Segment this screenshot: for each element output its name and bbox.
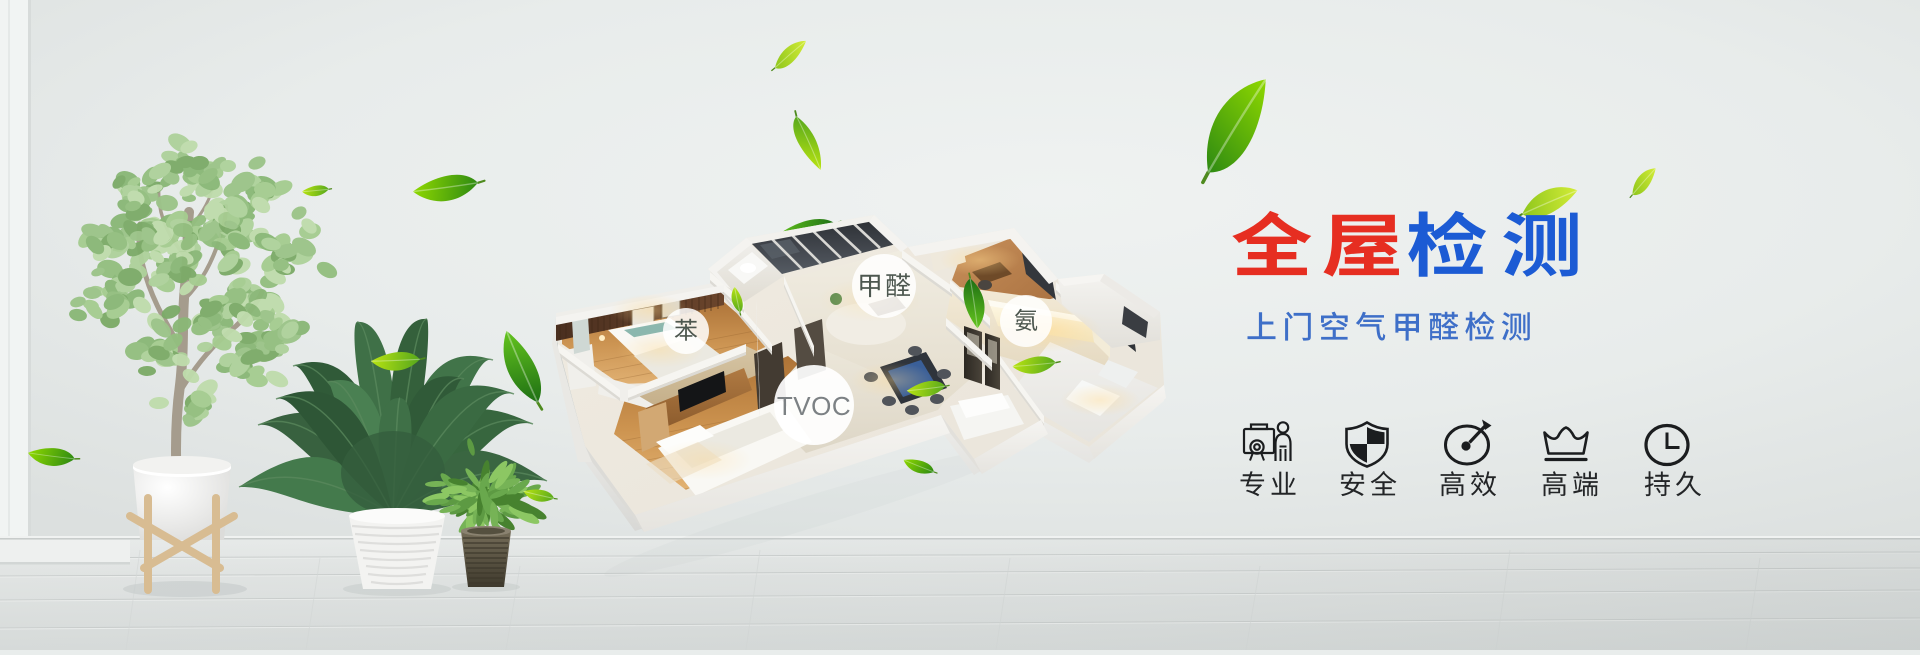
svg-text:TVOC: TVOC — [777, 391, 851, 421]
